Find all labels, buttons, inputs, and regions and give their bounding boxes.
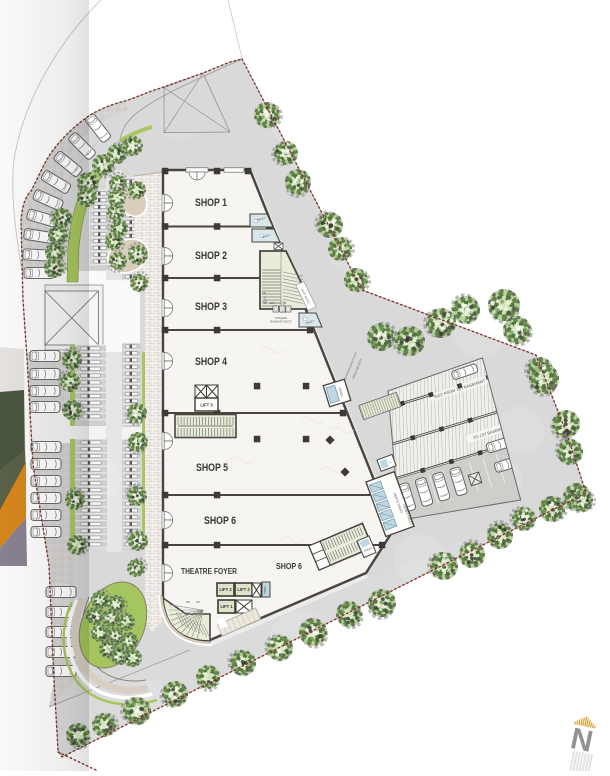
- svg-text:THEATRE FOYER: THEATRE FOYER: [181, 567, 237, 576]
- svg-text:LIFT 1: LIFT 1: [220, 604, 233, 609]
- svg-text:UP: UP: [196, 600, 200, 604]
- svg-text:EXHAUST DUCT: EXHAUST DUCT: [270, 320, 292, 324]
- svg-text:SHOP 2: SHOP 2: [195, 250, 227, 262]
- svg-text:LIFT 2: LIFT 2: [237, 587, 250, 592]
- svg-text:SHOP 1: SHOP 1: [195, 197, 227, 209]
- svg-text:UP: UP: [262, 291, 266, 295]
- svg-text:DN: DN: [186, 600, 190, 604]
- svg-text:LIFT 2: LIFT 2: [219, 587, 232, 592]
- svg-text:DN: DN: [270, 301, 274, 305]
- svg-text:SHOP 4: SHOP 4: [195, 356, 228, 368]
- svg-text:TOILET: TOILET: [265, 585, 267, 594]
- svg-text:SHOP 5: SHOP 5: [196, 462, 228, 474]
- svg-text:SHOP 3: SHOP 3: [195, 301, 227, 313]
- svg-text:LIFT 3: LIFT 3: [200, 403, 213, 408]
- svg-text:SHOP 6: SHOP 6: [204, 515, 236, 527]
- svg-text:SHOP 6: SHOP 6: [276, 561, 302, 571]
